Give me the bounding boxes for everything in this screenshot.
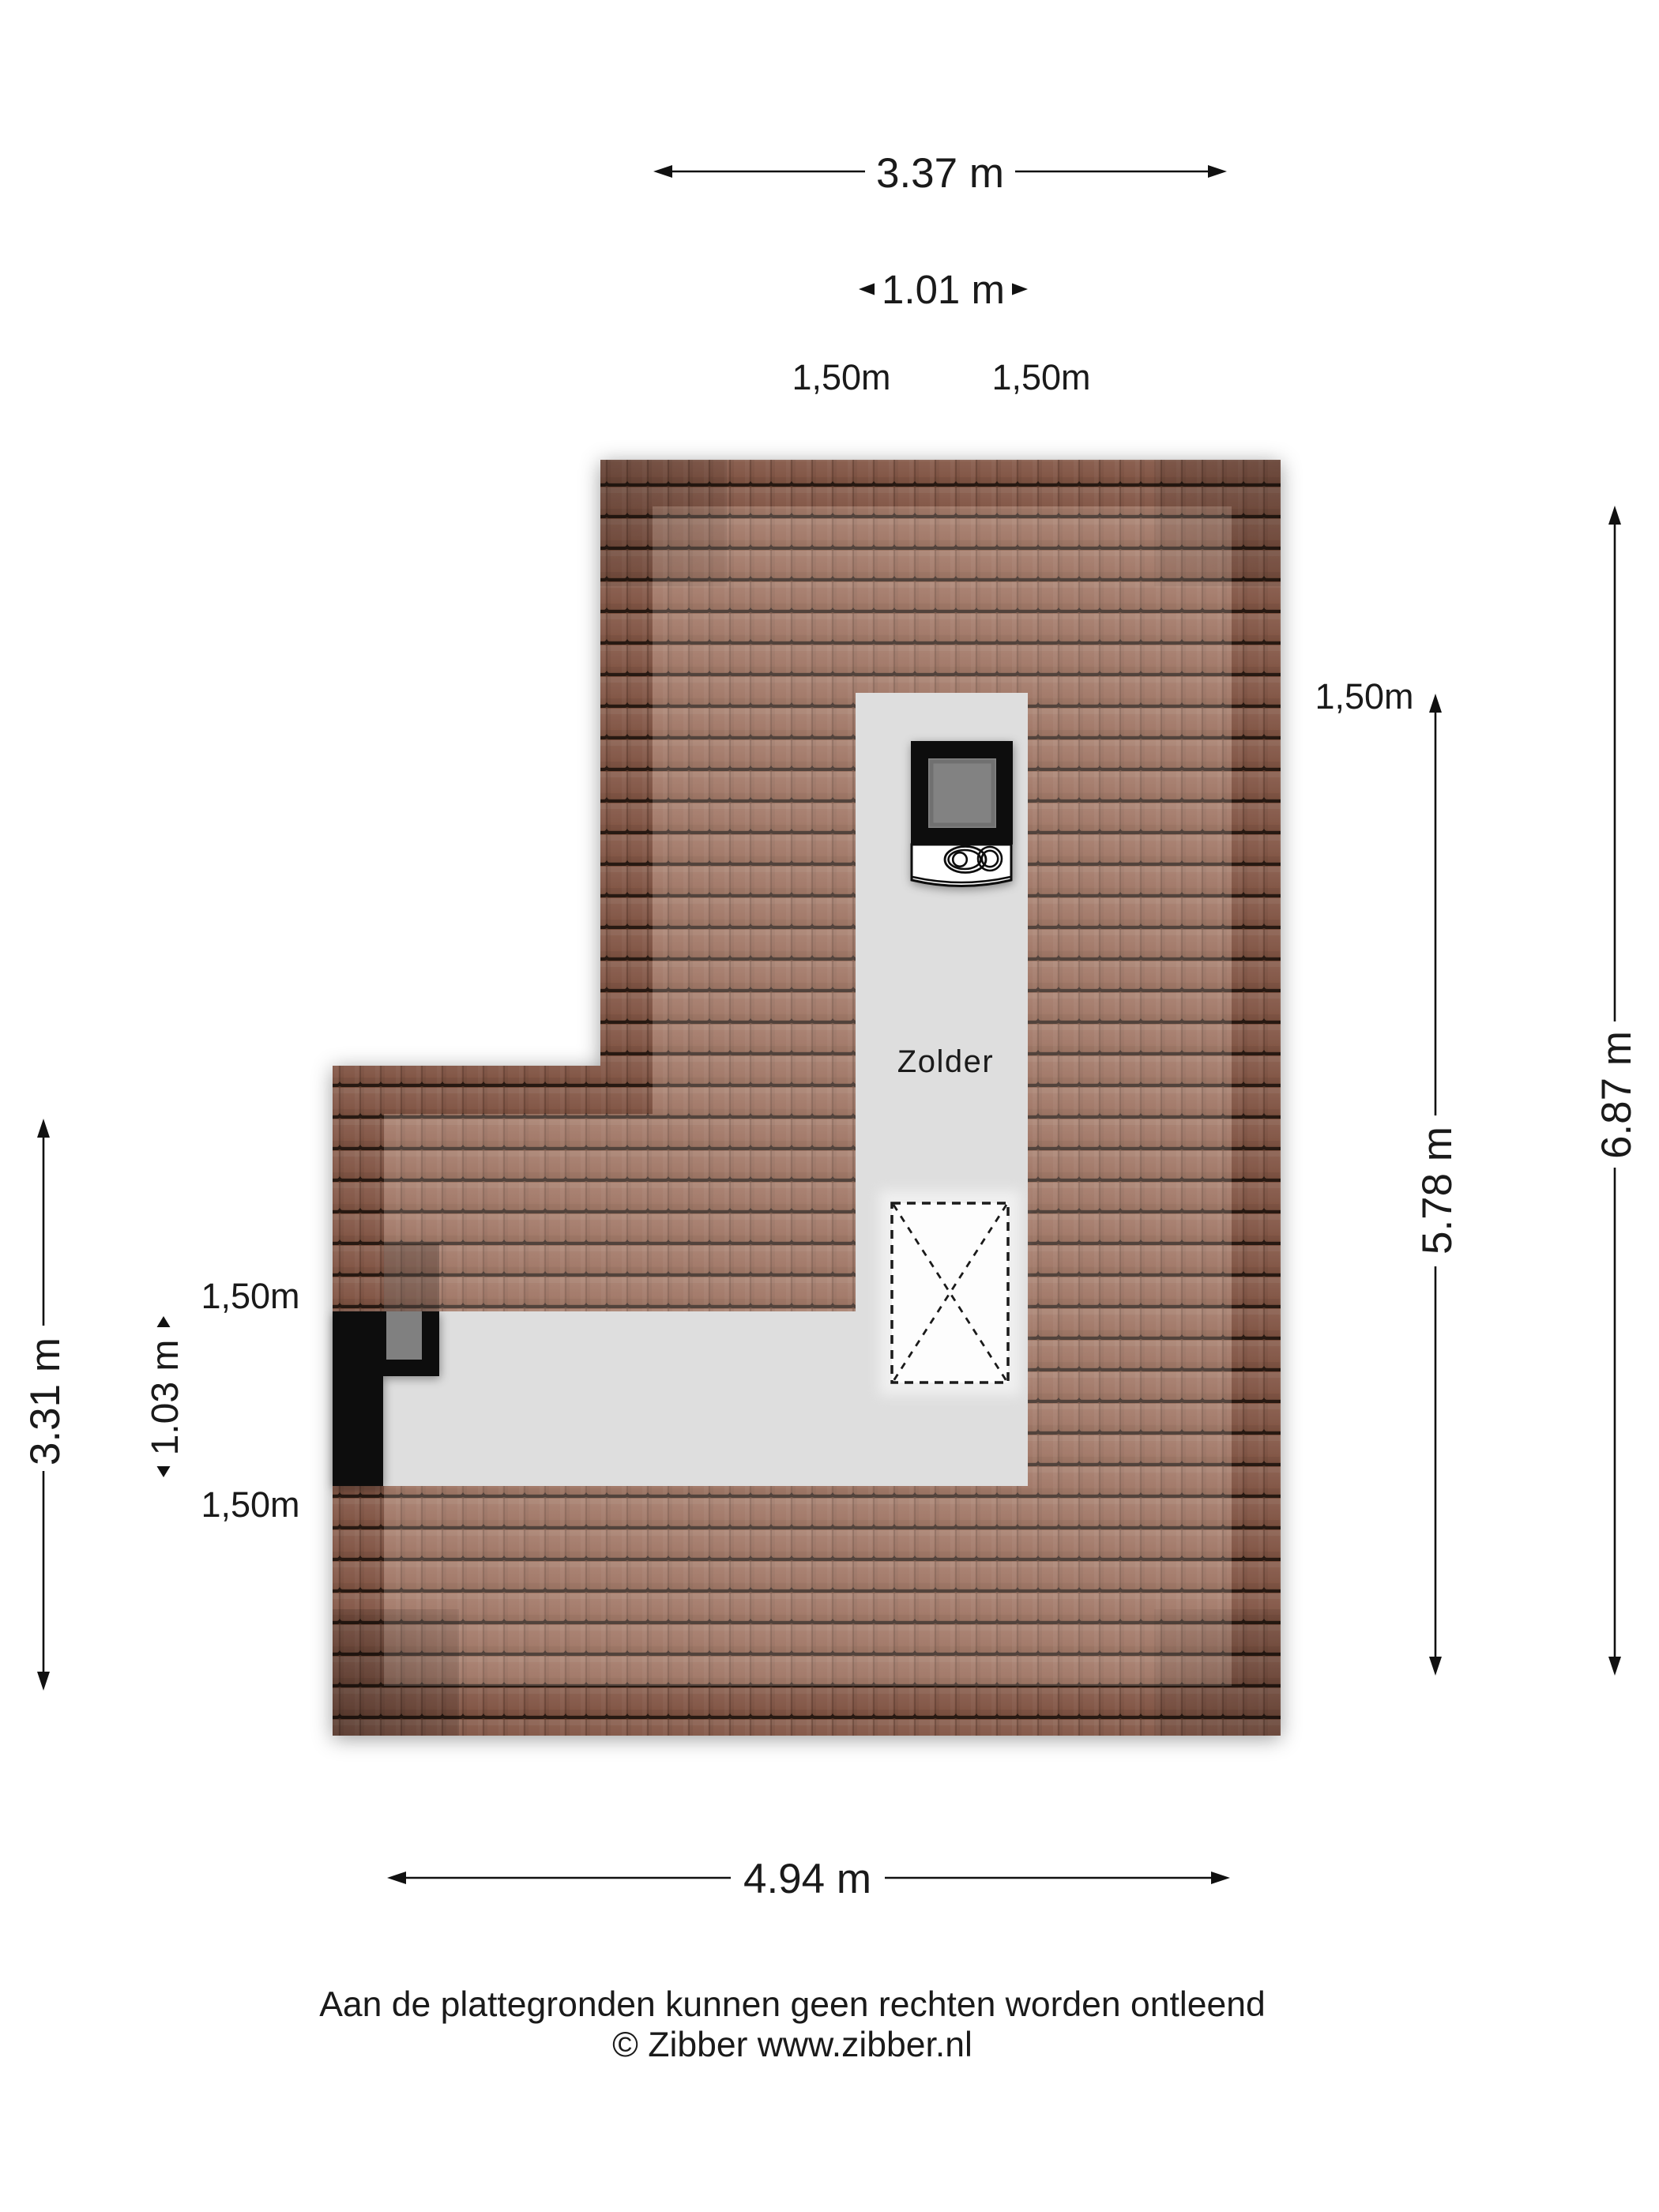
svg-text:Aan de plattegronden kunnen ge: Aan de plattegronden kunnen geen rechten…	[319, 1985, 1266, 2024]
svg-text:1.01 m: 1.01 m	[882, 267, 1005, 312]
svg-text:1,50m: 1,50m	[201, 1276, 299, 1316]
svg-text:1,50m: 1,50m	[201, 1484, 299, 1525]
svg-text:3.31 m: 3.31 m	[22, 1337, 69, 1465]
svg-text:4.94 m: 4.94 m	[743, 1856, 871, 1902]
svg-text:1.03 m: 1.03 m	[145, 1340, 186, 1456]
svg-text:6.87 m: 6.87 m	[1593, 1031, 1640, 1159]
svg-text:5.78 m: 5.78 m	[1414, 1127, 1461, 1255]
svg-text:1,50m: 1,50m	[991, 357, 1090, 397]
svg-text:1,50m: 1,50m	[792, 357, 890, 397]
svg-text:© Zibber www.zibber.nl: © Zibber www.zibber.nl	[612, 2026, 972, 2064]
svg-text:3.37 m: 3.37 m	[876, 150, 1004, 197]
svg-text:Zolder: Zolder	[897, 1044, 994, 1079]
svg-text:1,50m: 1,50m	[1315, 676, 1413, 717]
